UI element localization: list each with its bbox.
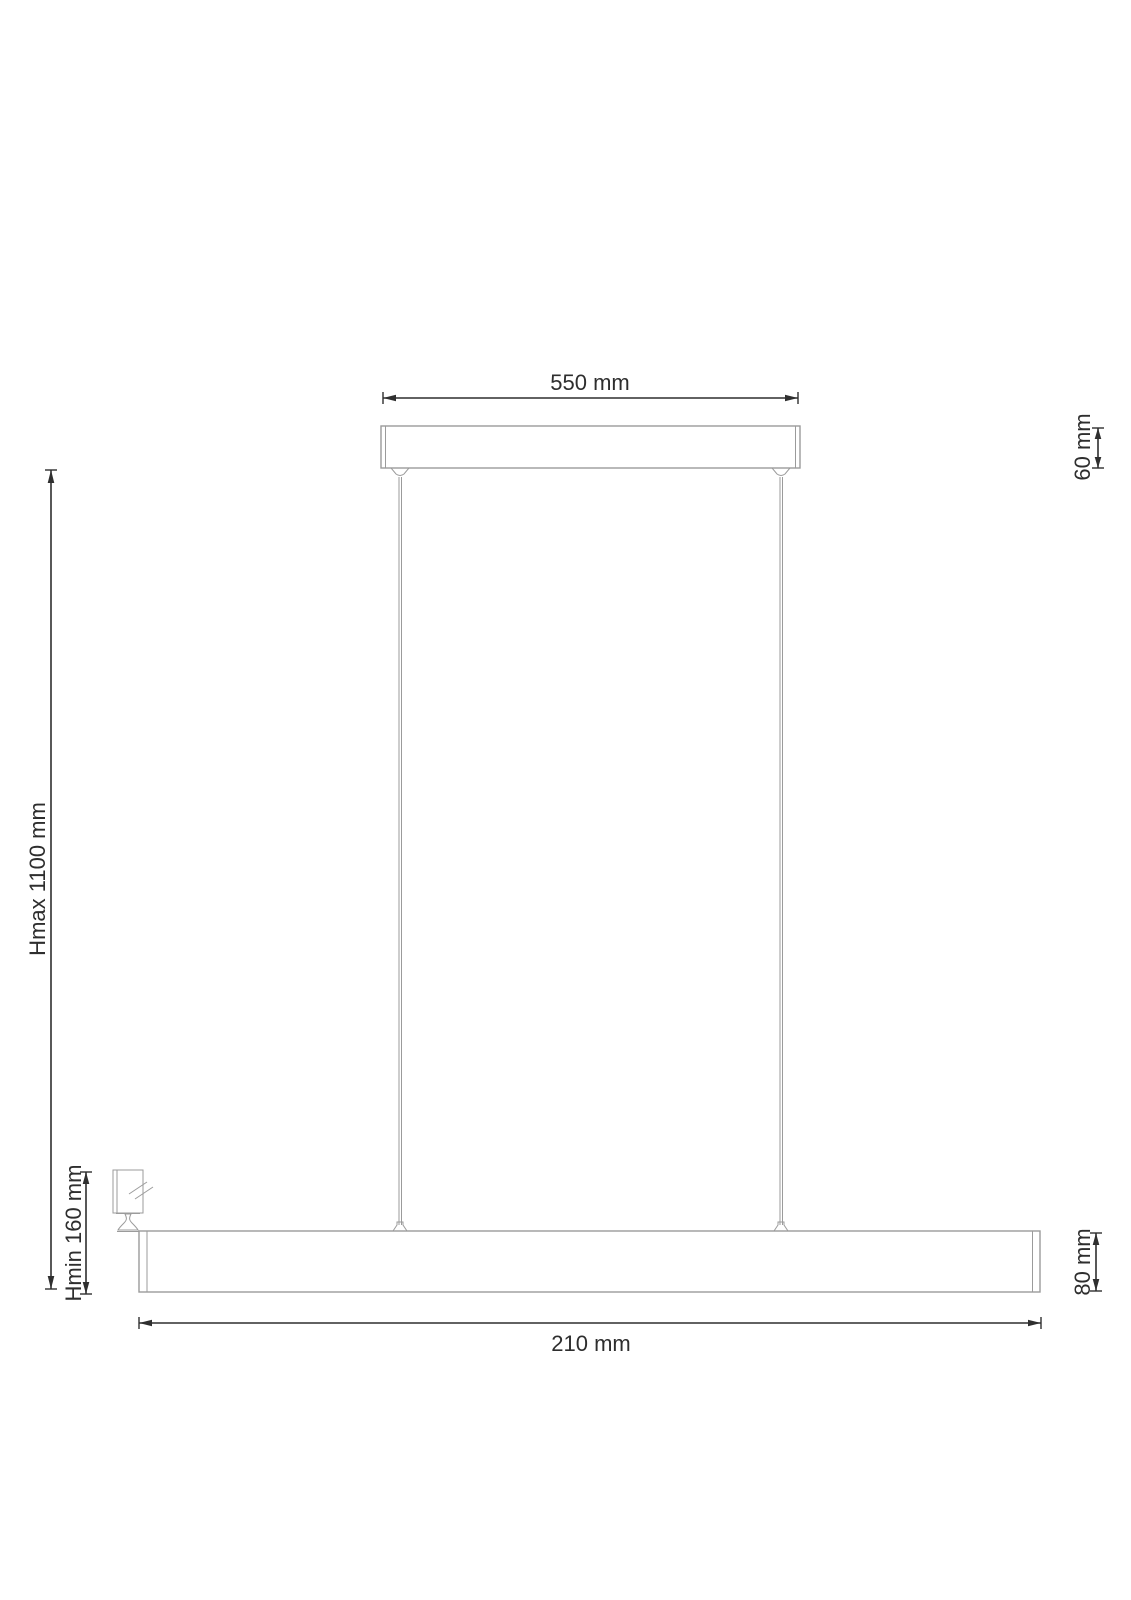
dimension-label-bar-height: 80 mm bbox=[1070, 1228, 1095, 1295]
dimension-hmin: Hmin 160 mm bbox=[61, 1165, 92, 1302]
bulb-pin-stem bbox=[118, 1214, 138, 1230]
light-bar bbox=[139, 1231, 1040, 1292]
dimension-label-bar-width: 210 mm bbox=[551, 1331, 630, 1356]
dimension-label-canopy-width: 550 mm bbox=[550, 370, 629, 395]
lamp-dimension-diagram: 550 mm 60 mm Hmax 1100 mm Hmi bbox=[0, 0, 1131, 1600]
wire-foot-right bbox=[774, 1222, 788, 1231]
cable-gripper-right bbox=[772, 468, 790, 476]
dimension-bar-height: 80 mm bbox=[1070, 1228, 1102, 1295]
dimension-label-hmin: Hmin 160 mm bbox=[61, 1165, 86, 1302]
g9-bulb-icon bbox=[113, 1170, 153, 1232]
cable-gripper-left bbox=[391, 468, 409, 476]
diagram-canvas: 550 mm 60 mm Hmax 1100 mm Hmi bbox=[0, 0, 1131, 1600]
dimension-hmax: Hmax 1100 mm bbox=[25, 470, 57, 1289]
light-bar-body bbox=[139, 1231, 1040, 1292]
wire-foot-left bbox=[393, 1222, 407, 1231]
dimension-canopy-height: 60 mm bbox=[1070, 413, 1104, 480]
dimension-label-hmax: Hmax 1100 mm bbox=[25, 802, 50, 956]
dimension-label-canopy-height: 60 mm bbox=[1070, 413, 1095, 480]
ceiling-canopy bbox=[381, 426, 800, 476]
canopy-body bbox=[381, 426, 800, 468]
suspension-wires bbox=[393, 477, 788, 1231]
dimension-bar-width: 210 mm bbox=[139, 1317, 1041, 1356]
dimension-canopy-width: 550 mm bbox=[383, 370, 798, 404]
